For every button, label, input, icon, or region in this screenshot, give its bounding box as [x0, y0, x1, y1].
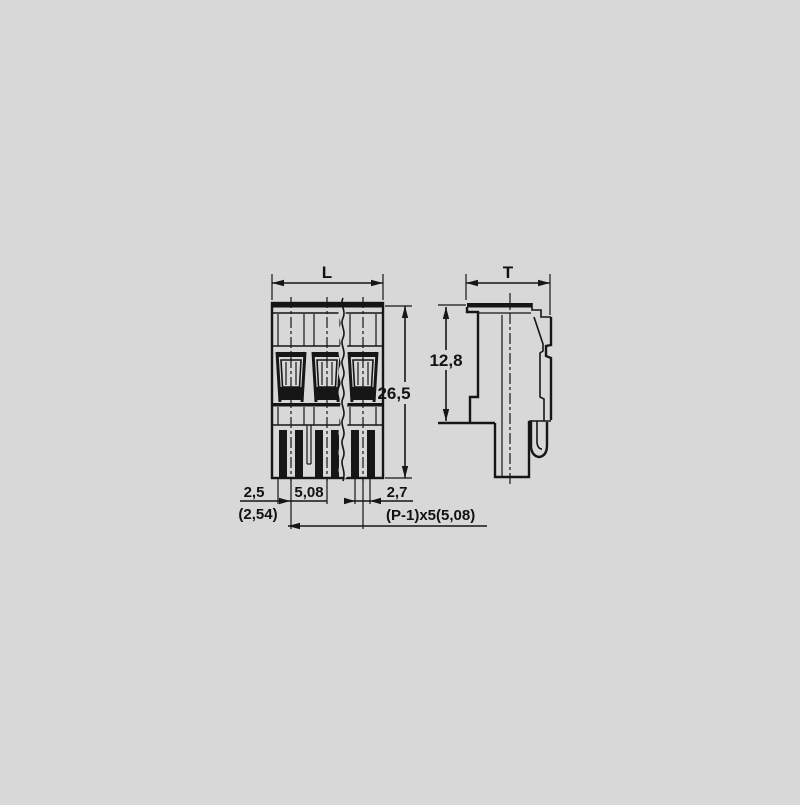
dim-label-265: 26,5 [377, 384, 410, 403]
dim-label-128: 12,8 [429, 351, 462, 370]
technical-drawing-canvas: L 26,5 2,5 (2,54) 5,08 [0, 0, 800, 800]
dimension-upper-height-128: 12,8 [429, 305, 466, 421]
arrowhead-right-icon [344, 498, 355, 504]
pin-bar [367, 430, 375, 478]
dimension-total-pitch: (P-1)x5(5,08) [288, 507, 487, 529]
dimension-pin-width-27: 2,7 [344, 484, 413, 504]
arrowhead-right-icon [371, 280, 383, 286]
arrowhead-down-icon [443, 409, 449, 421]
arrowhead-right-icon [538, 280, 550, 286]
pin-bar [331, 430, 339, 478]
arrowhead-down-icon [402, 466, 408, 478]
side-foot [495, 421, 529, 477]
dim-label-T: T [503, 263, 514, 282]
pin-bar [295, 430, 303, 478]
side-top-bar [467, 303, 532, 308]
dim-label-total-pitch: (P-1)x5(5,08) [386, 507, 475, 524]
side-right-edge [546, 317, 551, 420]
front-view: L 26,5 2,5 (2,54) 5,08 [238, 263, 487, 529]
side-body [438, 293, 551, 485]
side-view: T 12,8 [429, 263, 551, 485]
arrowhead-left-icon [272, 280, 284, 286]
terminal-block-drawing: L 26,5 2,5 (2,54) 5,08 [0, 0, 800, 800]
arrowhead-right-icon [279, 498, 290, 504]
dimension-pitch-group: 2,5 (2,54) 5,08 [238, 484, 327, 523]
bottom-extension-lines [278, 479, 370, 529]
side-top-right-step [532, 303, 551, 317]
partition-walls [278, 314, 376, 425]
pin-bar [351, 430, 359, 478]
side-latch-inner [534, 317, 544, 421]
dim-label-27: 2,7 [387, 484, 408, 501]
arrowhead-up-icon [402, 306, 408, 318]
dim-label-L: L [322, 263, 332, 282]
dim-label-254: (2,54) [238, 506, 277, 523]
arrowhead-left-icon [288, 523, 300, 529]
pin-bar [279, 430, 287, 478]
side-hook-inner [537, 421, 542, 449]
dimension-width-L: L [272, 263, 383, 300]
dim-label-25: 2,5 [244, 484, 265, 501]
pin-bar [315, 430, 323, 478]
side-left-profile [467, 307, 478, 423]
arrowhead-up-icon [443, 307, 449, 319]
arrowhead-left-icon [466, 280, 478, 286]
side-hook-outer [531, 421, 547, 457]
break-line [342, 298, 344, 481]
arrowhead-left-icon [370, 498, 381, 504]
dim-label-508: 5,08 [294, 484, 323, 501]
